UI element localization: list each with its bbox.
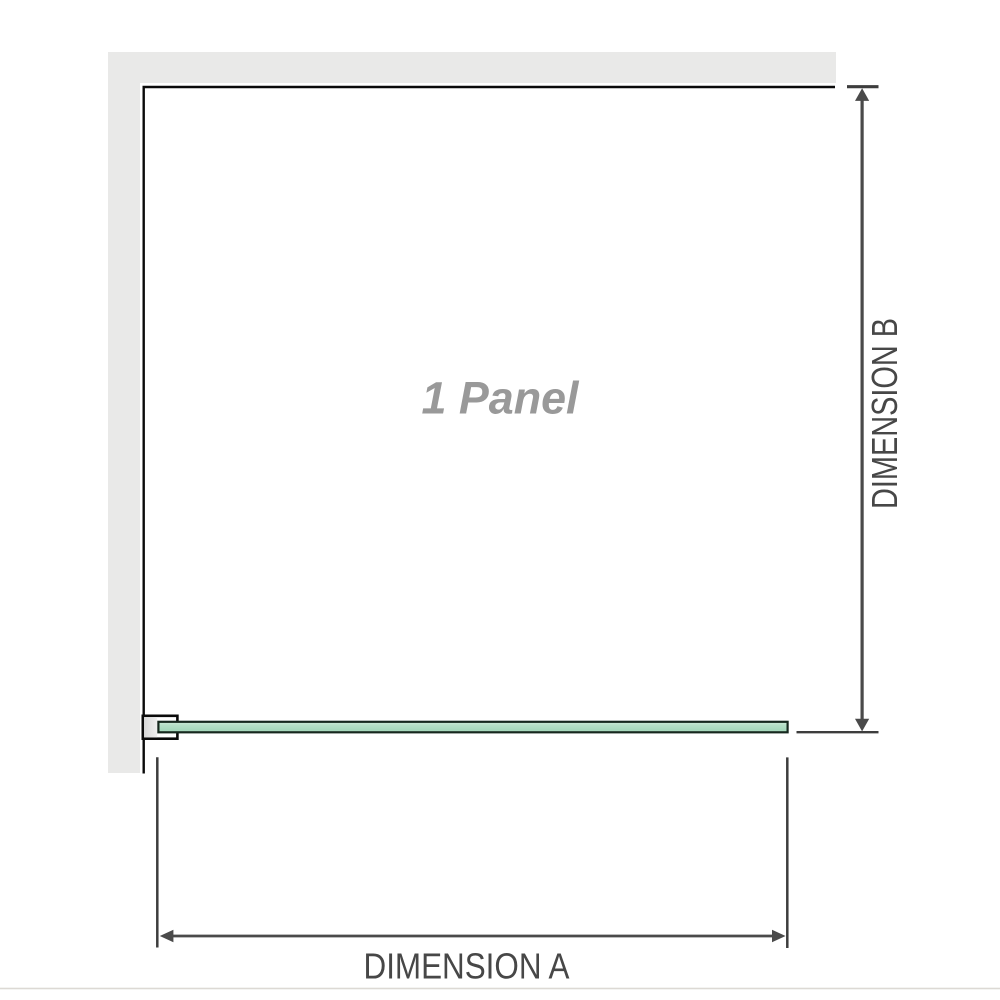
svg-text:DIMENSION A: DIMENSION A	[364, 946, 571, 987]
svg-text:1 Panel: 1 Panel	[422, 373, 580, 424]
svg-text:DIMENSION B: DIMENSION B	[864, 318, 905, 509]
